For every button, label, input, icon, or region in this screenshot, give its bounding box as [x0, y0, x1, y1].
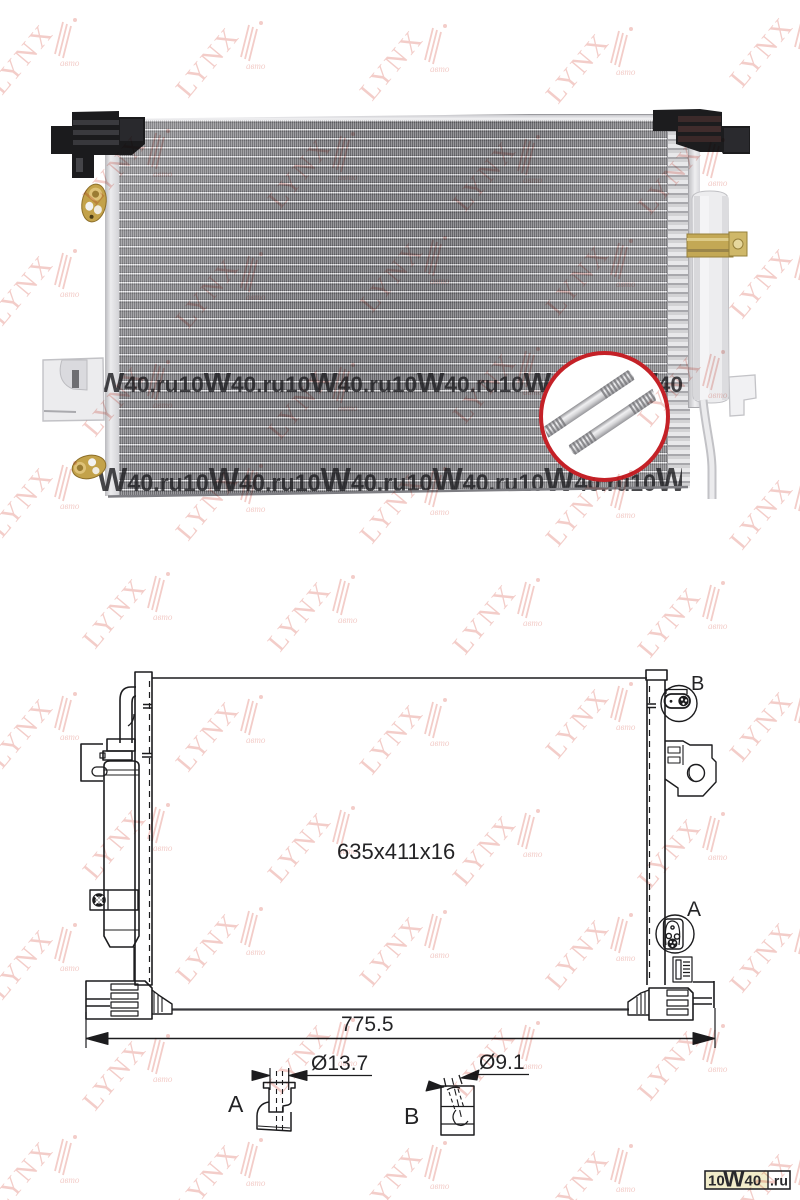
svg-text:A: A: [687, 898, 701, 921]
svg-text:Ø9.1: Ø9.1: [479, 1051, 525, 1074]
svg-text:775.5: 775.5: [341, 1013, 394, 1036]
svg-text:B: B: [691, 673, 704, 695]
svg-text:Ø13.7: Ø13.7: [311, 1052, 368, 1075]
svg-text:40: 40: [745, 1173, 762, 1190]
svg-text:.ru: .ru: [770, 1173, 788, 1189]
svg-text:635x411x16: 635x411x16: [337, 839, 455, 864]
svg-text:B: B: [404, 1103, 419, 1129]
svg-text:A: A: [228, 1091, 244, 1117]
svg-text:W: W: [723, 1166, 745, 1192]
